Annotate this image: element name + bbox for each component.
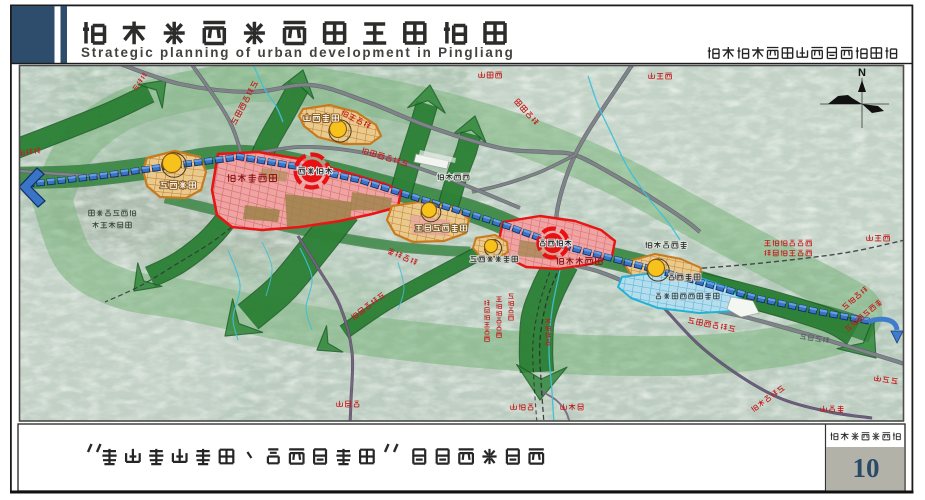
svg-text:Strategic planning of urban de: Strategic planning of urban development …	[81, 45, 515, 60]
svg-text:N: N	[858, 67, 866, 79]
svg-text:10: 10	[853, 453, 880, 483]
